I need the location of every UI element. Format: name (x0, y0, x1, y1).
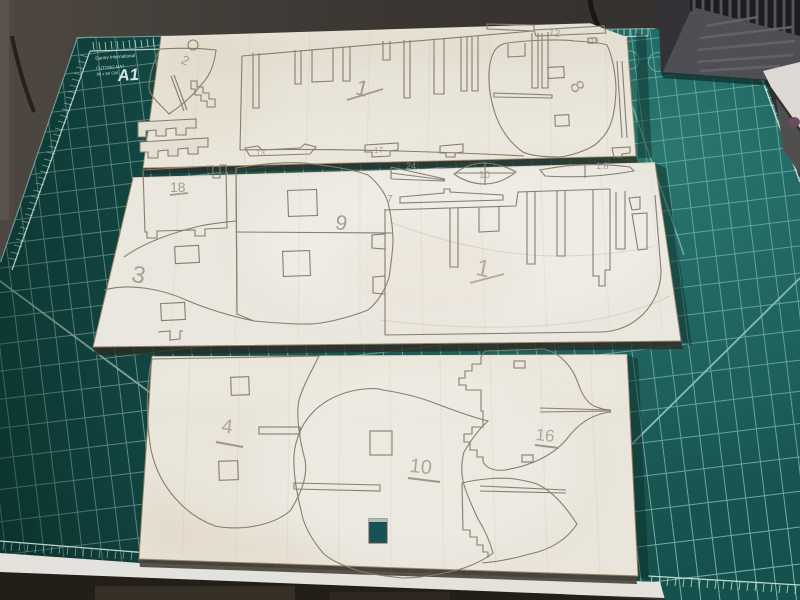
svg-text:16: 16 (535, 425, 556, 446)
svg-text:24: 24 (406, 161, 416, 171)
svg-text:A1: A1 (116, 66, 139, 85)
svg-text:13: 13 (256, 149, 265, 158)
svg-text:18: 18 (170, 179, 186, 195)
svg-text:12: 12 (548, 27, 561, 40)
svg-text:7: 7 (387, 194, 393, 205)
svg-text:17: 17 (374, 146, 383, 155)
svg-text:13: 13 (590, 37, 599, 46)
svg-text:10: 10 (479, 170, 491, 181)
svg-text:1.8: 1.8 (596, 161, 609, 171)
svg-text:10: 10 (408, 455, 432, 479)
